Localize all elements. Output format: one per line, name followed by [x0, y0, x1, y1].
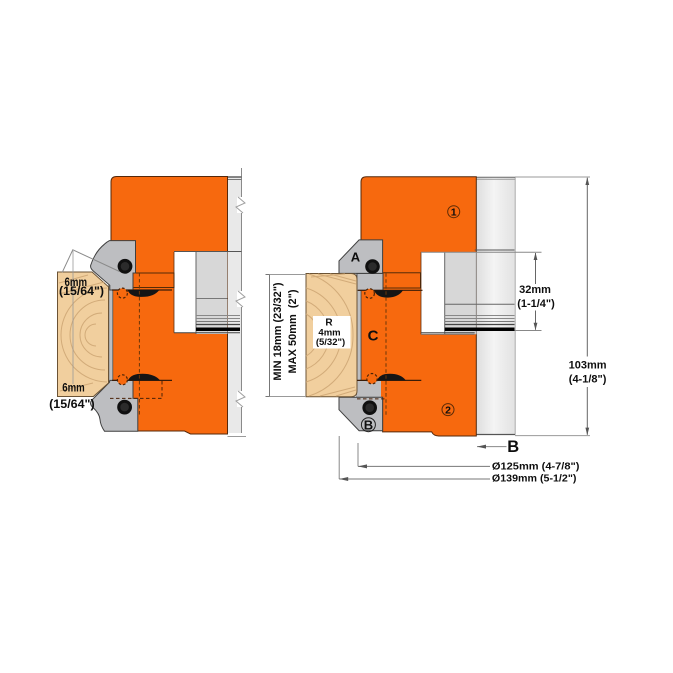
- svg-text:Ø125mm (4-7/8"): Ø125mm (4-7/8"): [492, 461, 580, 473]
- svg-text:(5/32"): (5/32"): [316, 337, 345, 348]
- svg-text:B: B: [507, 438, 519, 456]
- svg-text:A: A: [351, 249, 361, 264]
- svg-text:MAX 50mm (2"): MAX 50mm (2"): [287, 289, 299, 373]
- svg-text:MIN 18mm (23/32"): MIN 18mm (23/32"): [272, 282, 284, 380]
- svg-text:(1-1/4"): (1-1/4"): [517, 298, 555, 310]
- svg-text:1: 1: [451, 207, 457, 219]
- svg-text:6mm: 6mm: [62, 381, 85, 395]
- svg-text:2: 2: [445, 405, 451, 417]
- svg-text:(4-1/8"): (4-1/8"): [569, 374, 607, 386]
- svg-text:Ø139mm (5-1/2"): Ø139mm (5-1/2"): [492, 473, 577, 485]
- svg-text:(15/64"): (15/64"): [49, 399, 95, 411]
- svg-text:(15/64"): (15/64"): [59, 286, 104, 298]
- svg-text:C: C: [368, 327, 379, 344]
- svg-text:B: B: [364, 417, 373, 432]
- svg-text:103mm: 103mm: [569, 360, 607, 372]
- svg-text:32mm: 32mm: [519, 284, 551, 296]
